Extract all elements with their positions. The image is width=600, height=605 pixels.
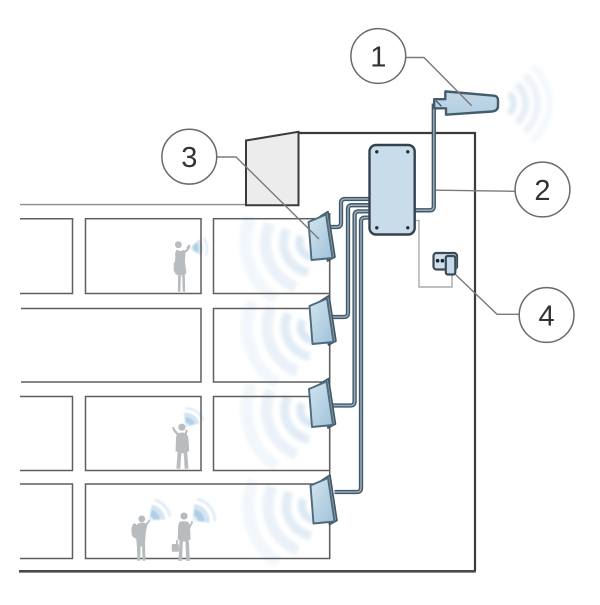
svg-text:4: 4 bbox=[539, 300, 555, 332]
svg-text:2: 2 bbox=[534, 175, 550, 207]
svg-text:3: 3 bbox=[181, 142, 197, 174]
svg-text:1: 1 bbox=[370, 41, 386, 73]
